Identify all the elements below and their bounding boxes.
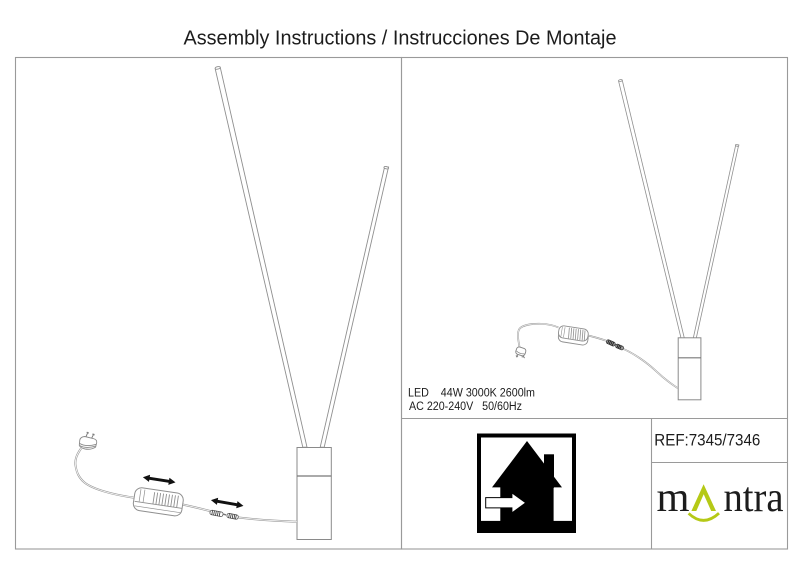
svg-text:REF:7345/7346: REF:7345/7346	[654, 432, 760, 450]
svg-text:ntra: ntra	[724, 475, 784, 521]
svg-text:m: m	[657, 475, 690, 521]
svg-text:LED 44W 3000K 2600lm: LED 44W 3000K 2600lm	[408, 386, 535, 400]
svg-text:Assembly Instructions / Instru: Assembly Instructions / Instrucciones De…	[184, 27, 617, 49]
svg-text:AC 220-240V 50/60Hz: AC 220-240V 50/60Hz	[409, 399, 522, 413]
